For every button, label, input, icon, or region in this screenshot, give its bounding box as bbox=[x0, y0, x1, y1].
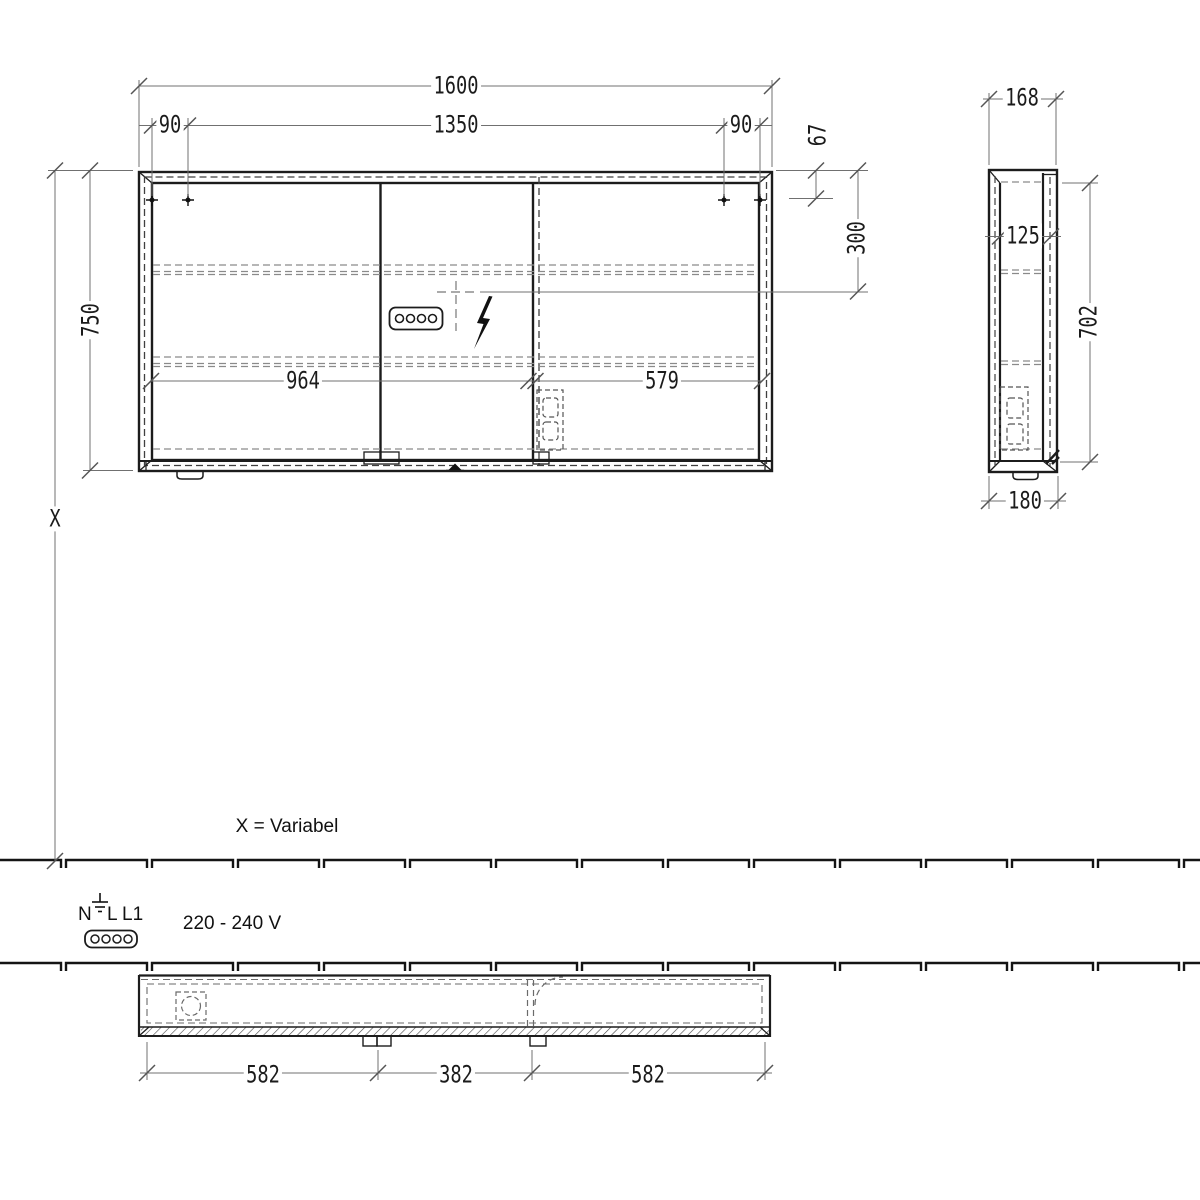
technical-drawing-mirror-cabinet: 1600 90 1350 90 67 300 750 X 964 579 168… bbox=[0, 0, 1200, 1200]
dim-top-to-holes: 67 bbox=[805, 121, 830, 148]
plan-clip-b bbox=[377, 1036, 391, 1046]
dim-height-variable: X bbox=[47, 506, 63, 531]
door-swing-arc bbox=[535, 977, 563, 1005]
plan-clip-a bbox=[363, 1036, 377, 1046]
plan-sensor-detail bbox=[176, 992, 206, 1020]
dim-hole-offset-right: 90 bbox=[727, 112, 754, 137]
light-diffuser-hatch bbox=[141, 1028, 769, 1036]
dim-plan-left: 582 bbox=[244, 1062, 283, 1087]
dim-height: 750 bbox=[78, 301, 103, 340]
wall-section-lower bbox=[0, 963, 1200, 971]
plan-clip-c bbox=[530, 1036, 546, 1046]
wall-socket-icon bbox=[85, 931, 137, 948]
dim-top-to-socket: 300 bbox=[844, 219, 869, 258]
terminal-n-label: N bbox=[78, 905, 92, 924]
dim-depth-top: 168 bbox=[1003, 85, 1042, 110]
wall-section-upper bbox=[0, 860, 1200, 868]
power-socket-icon bbox=[390, 308, 443, 330]
lightning-bolt-icon bbox=[474, 296, 493, 349]
dim-door-right-width: 579 bbox=[643, 368, 682, 393]
mounting-hole-markers bbox=[146, 194, 766, 206]
front-view bbox=[139, 172, 772, 479]
bottom-clip-right bbox=[533, 452, 549, 464]
center-mark bbox=[446, 464, 464, 471]
sensor-switch-bump bbox=[177, 471, 203, 479]
dim-plan-center: 382 bbox=[437, 1062, 476, 1087]
hidden-component-front bbox=[537, 390, 563, 450]
dim-door-left-width: 964 bbox=[284, 368, 323, 393]
dim-inner-width: 1350 bbox=[431, 112, 481, 137]
voltage-range: 220 - 240 V bbox=[181, 914, 283, 934]
hidden-component-side bbox=[1000, 387, 1028, 450]
dim-total-width: 1600 bbox=[431, 73, 481, 98]
side-shelf-lines bbox=[1001, 270, 1042, 449]
cabinet-outer-frame bbox=[139, 172, 772, 471]
dim-height-inner: 702 bbox=[1076, 303, 1101, 342]
door-outline-dashed bbox=[145, 177, 767, 466]
plan-divider-dashed bbox=[528, 980, 534, 1027]
dim-plan-right: 582 bbox=[629, 1062, 668, 1087]
dim-depth-inner: 125 bbox=[1004, 223, 1043, 248]
side-view bbox=[989, 170, 1059, 480]
plan-view bbox=[139, 975, 770, 1046]
cabinet-inner-frame bbox=[152, 183, 759, 460]
drawing-canvas bbox=[0, 0, 1200, 1200]
dim-depth-bottom: 180 bbox=[1006, 488, 1045, 513]
terminal-l-label: L bbox=[107, 905, 118, 924]
terminal-l1-label: L1 bbox=[122, 905, 143, 924]
earth-ground-icon bbox=[92, 893, 108, 912]
variable-note: X = Variabel bbox=[234, 817, 341, 837]
plan-inner-dashed bbox=[147, 984, 762, 1023]
dim-hole-offset-left: 90 bbox=[156, 112, 183, 137]
corner-mitres bbox=[139, 172, 772, 471]
